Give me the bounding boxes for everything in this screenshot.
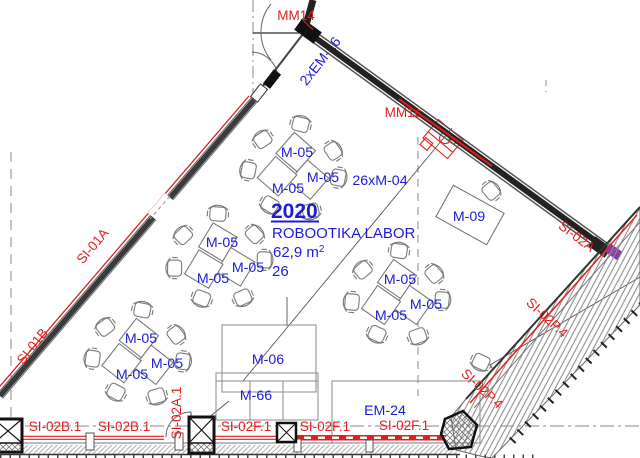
table-label: M-05 — [272, 181, 304, 197]
column-3 — [277, 423, 296, 442]
bottom-wall-hatch — [0, 445, 457, 454]
column-2 — [189, 417, 214, 453]
room-name: ROBOOTIKA LABOR — [272, 225, 416, 242]
cabinet-em24-label: EM-24 — [364, 403, 406, 419]
room-capacity: 26 — [272, 263, 289, 280]
table-m09-label: M-09 — [453, 209, 485, 225]
table-label: M-05 — [116, 367, 148, 383]
wall-si02f1-label: SI-02F.1 — [221, 419, 271, 434]
table-label: M-05 — [384, 272, 416, 288]
room-area: 62,9 m2 — [273, 244, 325, 261]
table-label: M-05 — [375, 308, 407, 324]
door-swing-arc — [261, 4, 271, 60]
wall-si02a1-label: SI-02A.1 — [169, 387, 184, 440]
desk-m06-label: M-06 — [252, 352, 284, 368]
table-label: M-05 — [307, 170, 339, 186]
table-label: M-05 — [151, 356, 183, 372]
wall-si02f1-label: SI-02F.1 — [379, 418, 429, 433]
wall-si02b1-label: SI-02B.1 — [98, 419, 151, 434]
wall-si02f1-label: SI-02F.1 — [300, 419, 350, 434]
chair-icon — [479, 177, 505, 203]
bench-m66-label: M-66 — [240, 388, 272, 404]
wall-exterior-hatched — [451, 207, 640, 458]
table-label: M-05 — [281, 145, 313, 161]
table-cluster-2 — [161, 200, 277, 314]
column-1 — [0, 419, 22, 452]
wall-si02b1-label: SI-02B.1 — [29, 419, 82, 434]
table-label: M-05 — [232, 260, 264, 276]
floor-plan-view: M-05 M-05 M-05 M-05 M-05 M-05 M-05 M-05 … — [0, 0, 640, 458]
chairs-spec-label: 26xM-04 — [352, 173, 407, 189]
room-number: 2020 — [271, 200, 318, 223]
bottom-wall-redlines — [2, 436, 283, 439]
table-label: M-05 — [197, 271, 229, 287]
door-mm14-label: MM14 — [277, 8, 315, 23]
fixture-mm1c-label: MM1c — [385, 105, 422, 120]
table-cluster-4 — [342, 241, 451, 348]
floor-plan-drawing: M-05 M-05 M-05 M-05 M-05 M-05 M-05 M-05 … — [0, 0, 640, 458]
table-label: M-05 — [410, 297, 442, 313]
wall-si01a-label: SI-01A — [74, 225, 112, 266]
table-label: M-05 — [125, 331, 157, 347]
annotations-blue: M-05 M-05 M-05 M-05 M-05 M-05 M-05 M-05 … — [116, 34, 485, 419]
table-label: M-05 — [206, 235, 238, 251]
